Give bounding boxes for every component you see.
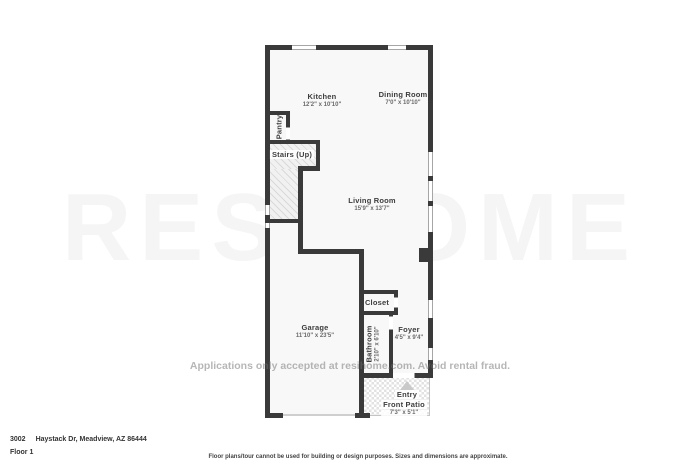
- wall: [428, 318, 433, 348]
- room-label-pantry: Pantry: [275, 115, 284, 140]
- disclaimer-text: Floor plans/tour cannot be used for buil…: [208, 454, 507, 460]
- street-address: Haystack Dr, Meadview, AZ 86444: [36, 436, 147, 443]
- wall: [265, 228, 270, 418]
- closet-wall: [359, 290, 398, 294]
- room-label-bathroom: Bathroom 2'10" x 6'10": [364, 325, 381, 362]
- pantry-door-opening: [286, 127, 290, 140]
- room-label-garage: Garage 11'10" x 23'5": [296, 323, 334, 341]
- property-address: 3002Haystack Dr, Meadview, AZ 86444: [10, 436, 147, 443]
- bathroom-door-opening: [389, 316, 393, 330]
- living-garage-wall: [298, 166, 303, 253]
- closet-door-opening: [394, 297, 398, 308]
- window: [428, 300, 433, 318]
- entry-door-opening: [392, 373, 415, 378]
- bathroom-wall: [389, 330, 393, 378]
- window: [428, 152, 433, 232]
- floor-plan-page: RESIHOME: [0, 0, 700, 467]
- room-label-dining: Dining Room 7'0" x 10'10": [379, 90, 428, 108]
- window-mullion: [428, 176, 433, 181]
- living-bottom-wall: [298, 249, 364, 254]
- room-label-kitchen: Kitchen 12'2" x 10'10": [303, 92, 342, 110]
- closet-wall: [394, 290, 398, 297]
- window: [292, 45, 316, 50]
- floor-label: Floor 1: [10, 449, 33, 456]
- wall: [428, 232, 433, 300]
- wall: [316, 45, 388, 50]
- garage-door: [283, 414, 355, 416]
- room-label-stairs: Stairs (Up): [270, 150, 314, 159]
- room-label-foyer: Foyer 4'5" x 9'4": [395, 325, 424, 343]
- entry-direction-arrow-icon: [400, 381, 414, 390]
- wall: [265, 413, 283, 418]
- room-label-entry: Entry: [395, 390, 419, 399]
- door-jamb: [419, 248, 428, 262]
- room-label-living: Living Room 15'9" x 13'7": [348, 196, 396, 214]
- stairs-wall: [266, 140, 320, 144]
- garage-right-wall: [359, 249, 364, 417]
- room-label-closet: Closet: [365, 298, 389, 307]
- stairs-bottom-wall: [265, 219, 302, 223]
- window-mullion: [428, 201, 433, 206]
- wall: [415, 373, 432, 378]
- wall: [265, 45, 270, 205]
- window: [428, 348, 433, 360]
- pantry-wall: [286, 111, 290, 127]
- window: [388, 45, 406, 50]
- unit-number: 3002: [10, 436, 26, 443]
- wall: [428, 45, 433, 152]
- room-label-front-patio: Front Patio 7'3" x 5'1": [381, 400, 427, 418]
